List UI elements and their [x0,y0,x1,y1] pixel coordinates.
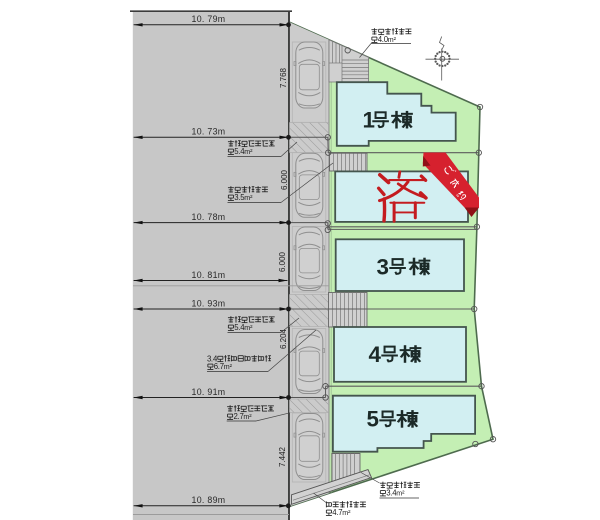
svg-text:5: 5 [367,407,379,432]
svg-text:6.204: 6.204 [279,328,288,349]
svg-text:m²: m² [224,363,233,371]
svg-text:4: 4 [369,342,382,367]
svg-text:6.000: 6.000 [278,251,287,272]
svg-text:10. 79m: 10. 79m [192,14,226,24]
svg-text:10. 81m: 10. 81m [192,270,226,280]
svg-text:10. 73m: 10. 73m [192,127,226,137]
svg-text:m²: m² [244,194,253,202]
svg-text:10. 89m: 10. 89m [192,495,226,505]
svg-text:m²: m² [244,324,253,332]
svg-text:m²: m² [244,148,253,156]
svg-text:6.000: 6.000 [280,169,289,190]
svg-text:7.442: 7.442 [278,446,287,467]
svg-text:7.768: 7.768 [279,67,288,88]
svg-text:10. 78m: 10. 78m [192,212,226,222]
svg-text:m²: m² [396,490,405,498]
svg-text:3: 3 [377,254,389,279]
svg-text:m²: m² [342,509,351,517]
svg-text:10. 91m: 10. 91m [192,387,226,397]
svg-text:m²: m² [243,413,252,421]
svg-text:1: 1 [363,108,375,133]
svg-text:10. 93m: 10. 93m [192,298,226,308]
svg-text:m²: m² [388,36,397,44]
